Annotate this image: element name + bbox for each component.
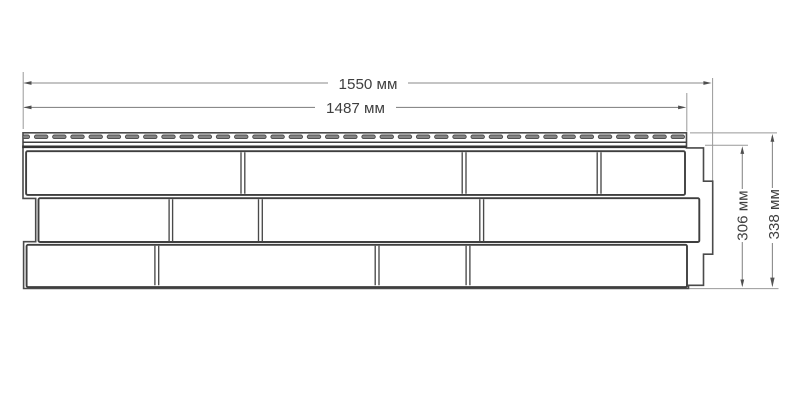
svg-text:338 мм: 338 мм	[766, 189, 783, 239]
svg-text:1487 мм: 1487 мм	[326, 100, 385, 117]
svg-text:1550 мм: 1550 мм	[339, 76, 398, 93]
svg-text:306 мм: 306 мм	[734, 190, 751, 240]
